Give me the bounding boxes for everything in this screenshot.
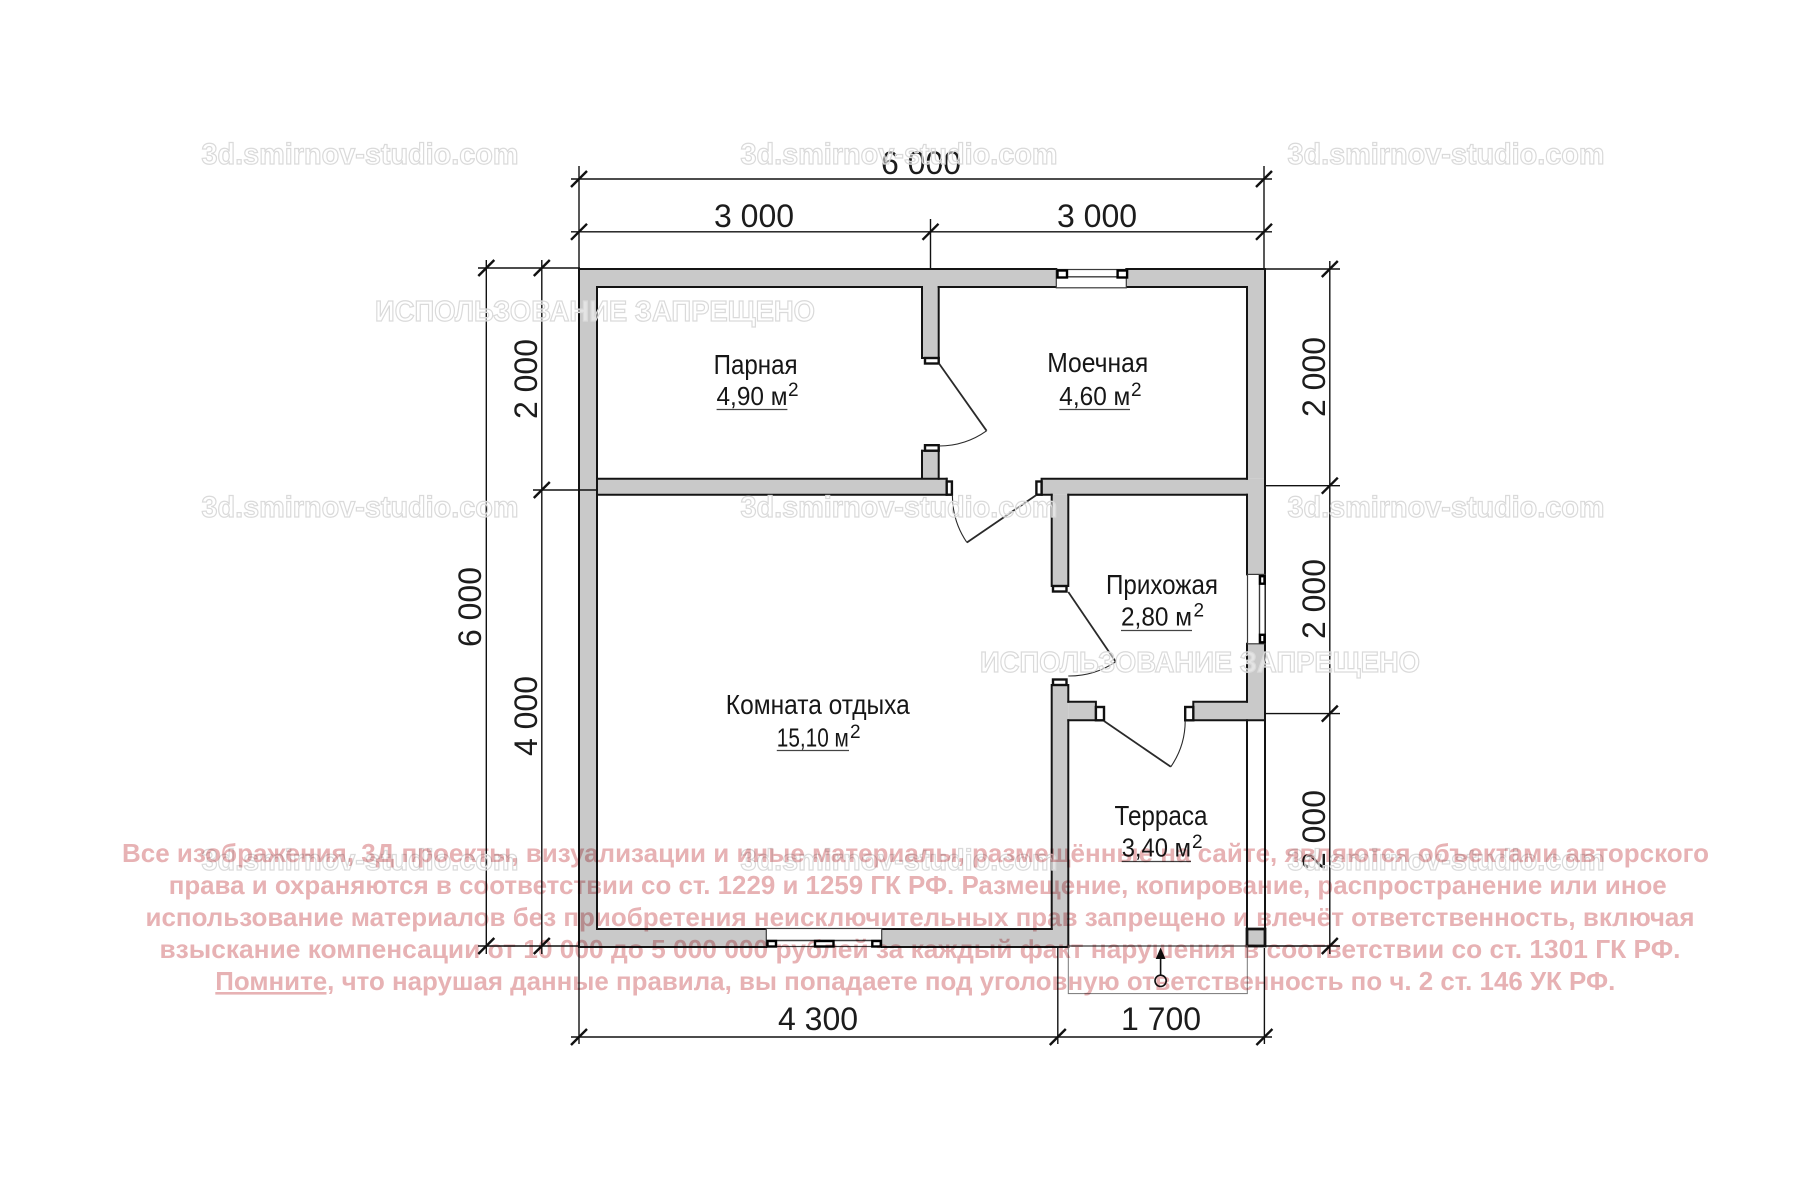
- svg-text:3d.smirnov-studio.com: 3d.smirnov-studio.com: [741, 138, 1058, 171]
- svg-text:15,10 м: 15,10 м: [777, 723, 849, 753]
- svg-text:4 300: 4 300: [778, 1001, 858, 1037]
- svg-text:Парная: Парная: [714, 349, 798, 380]
- svg-text:2,80 м: 2,80 м: [1121, 602, 1192, 632]
- svg-text:3d.smirnov-studio.com: 3d.smirnov-studio.com: [202, 138, 519, 171]
- svg-text:4,90 м: 4,90 м: [717, 381, 788, 411]
- svg-text:3d.smirnov-studio.com: 3d.smirnov-studio.com: [741, 491, 1058, 524]
- svg-text:ИСПОЛЬЗОВАНИЕ ЗАПРЕЩЕНО: ИСПОЛЬЗОВАНИЕ ЗАПРЕЩЕНО: [980, 647, 1420, 679]
- svg-text:2 000: 2 000: [508, 339, 544, 419]
- svg-text:2: 2: [788, 380, 799, 401]
- svg-text:3 000: 3 000: [1057, 198, 1137, 234]
- svg-text:1 700: 1 700: [1121, 1001, 1201, 1037]
- svg-text:права и охраняются в соответст: права и охраняются в соответствии со ст.…: [169, 870, 1667, 900]
- svg-text:использование материалов без п: использование материалов без приобретени…: [146, 902, 1695, 932]
- svg-text:3d.smirnov-studio.com: 3d.smirnov-studio.com: [1288, 491, 1605, 524]
- svg-text:3d.smirnov-studio.com: 3d.smirnov-studio.com: [1288, 138, 1605, 171]
- svg-text:Прихожая: Прихожая: [1106, 569, 1218, 600]
- svg-text:3 000: 3 000: [714, 198, 794, 234]
- svg-text:4,60 м: 4,60 м: [1059, 381, 1130, 411]
- svg-text:Терраса: Терраса: [1115, 800, 1208, 831]
- svg-text:Комната отдыха: Комната отдыха: [726, 689, 910, 720]
- svg-text:2: 2: [1194, 601, 1205, 622]
- svg-text:4 000: 4 000: [508, 676, 544, 756]
- svg-text:6 000: 6 000: [452, 567, 488, 647]
- svg-text:2 000: 2 000: [1296, 559, 1332, 639]
- svg-text:взыскание компенсации от 10 00: взыскание компенсации от 10 000 до 5 000…: [160, 934, 1681, 964]
- svg-text:2 000: 2 000: [1296, 337, 1332, 417]
- svg-text:3d.smirnov-studio.com: 3d.smirnov-studio.com: [202, 491, 519, 524]
- svg-text:Помните, что нарушая данные пр: Помните, что нарушая данные правила, вы …: [215, 966, 1615, 996]
- svg-text:ИСПОЛЬЗОВАНИЕ ЗАПРЕЩЕНО: ИСПОЛЬЗОВАНИЕ ЗАПРЕЩЕНО: [375, 296, 815, 328]
- svg-text:2: 2: [850, 722, 861, 743]
- svg-text:2: 2: [1131, 380, 1142, 401]
- svg-text:Все изображения, 3Д проекты, в: Все изображения, 3Д проекты, визуализаци…: [122, 838, 1709, 868]
- svg-text:Моечная: Моечная: [1047, 347, 1148, 378]
